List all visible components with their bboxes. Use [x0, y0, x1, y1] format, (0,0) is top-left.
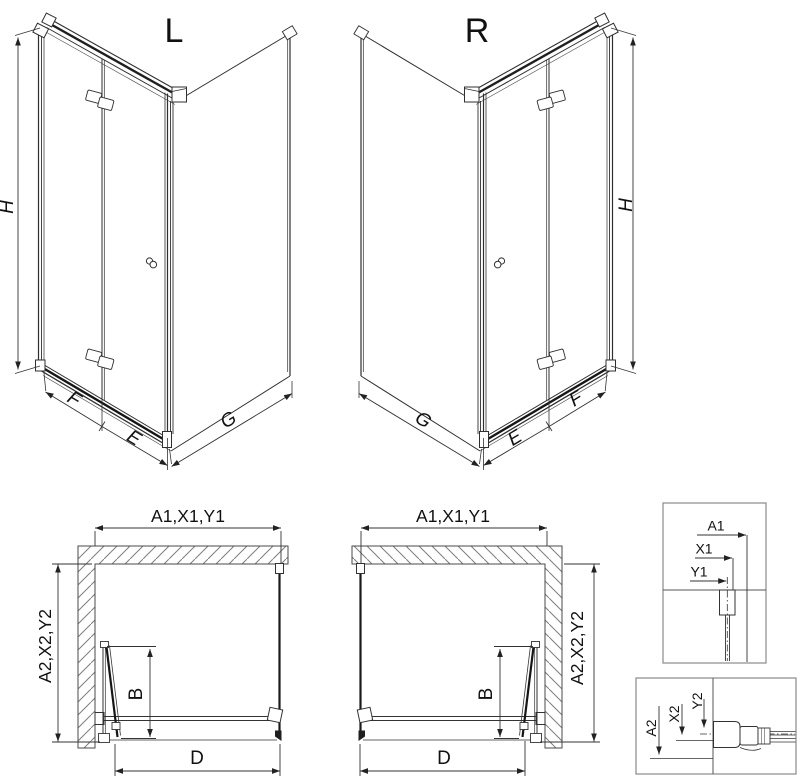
detail-top-dim-a1: A1: [707, 518, 724, 534]
dim-label-height-left: H: [0, 200, 18, 214]
plan-right-dimensions: [360, 528, 600, 776]
plan-right-depth-dim: A2,X2,Y2: [567, 611, 587, 685]
dim-label-g-right: G: [411, 407, 435, 433]
variant-label-left: L: [165, 12, 184, 50]
plan-right-door-fold-dim: B: [476, 688, 497, 701]
dim-label-g-left: G: [217, 407, 241, 433]
dim-label-f-left: F: [63, 387, 85, 412]
plan-left-entry-dim: D: [190, 748, 204, 769]
dim-label-e-right: E: [504, 426, 526, 451]
detail-bottom-dim-x2: X2: [666, 705, 682, 722]
plan-right-entry-dim: D: [437, 748, 451, 769]
dim-label-f-right: F: [566, 387, 588, 412]
isometric-right-variant: R H F E G: [354, 12, 637, 470]
enclosure-right-drawing: [354, 13, 636, 470]
plan-left-drawing: [78, 546, 288, 748]
variant-label-right: R: [465, 12, 490, 50]
plan-left-door-fold-dim: B: [126, 688, 147, 701]
detail-top-dim-x1: X1: [695, 541, 712, 557]
plan-view-right: A1,X1,Y1 A2,X2,Y2 B D: [352, 506, 600, 776]
dim-label-height-right: H: [616, 198, 637, 212]
plan-right-drawing: [352, 546, 562, 748]
isometric-left-variant: L H F E G: [0, 12, 297, 470]
plan-view-left: A1,X1,Y1 A2,X2,Y2 B D: [35, 506, 288, 776]
detail-top-dim-y1: Y1: [690, 564, 707, 580]
technical-drawing: L H F E G R H F E G A1,X1,Y1 A2,: [0, 0, 800, 784]
plan-left-width-dim: A1,X1,Y1: [151, 506, 225, 526]
plan-right-width-dim: A1,X1,Y1: [416, 506, 490, 526]
detail-bottom-dim-y2: Y2: [689, 692, 705, 709]
detail-bottom-profile: A2 X2 Y2: [636, 678, 796, 774]
dim-label-e-left: E: [123, 426, 145, 451]
enclosure-left-drawing: [15, 13, 297, 470]
detail-bottom-dim-a2: A2: [643, 719, 659, 736]
plan-left-depth-dim: A2,X2,Y2: [35, 609, 55, 683]
detail-top-profile: A1 X1 Y1: [663, 503, 766, 663]
